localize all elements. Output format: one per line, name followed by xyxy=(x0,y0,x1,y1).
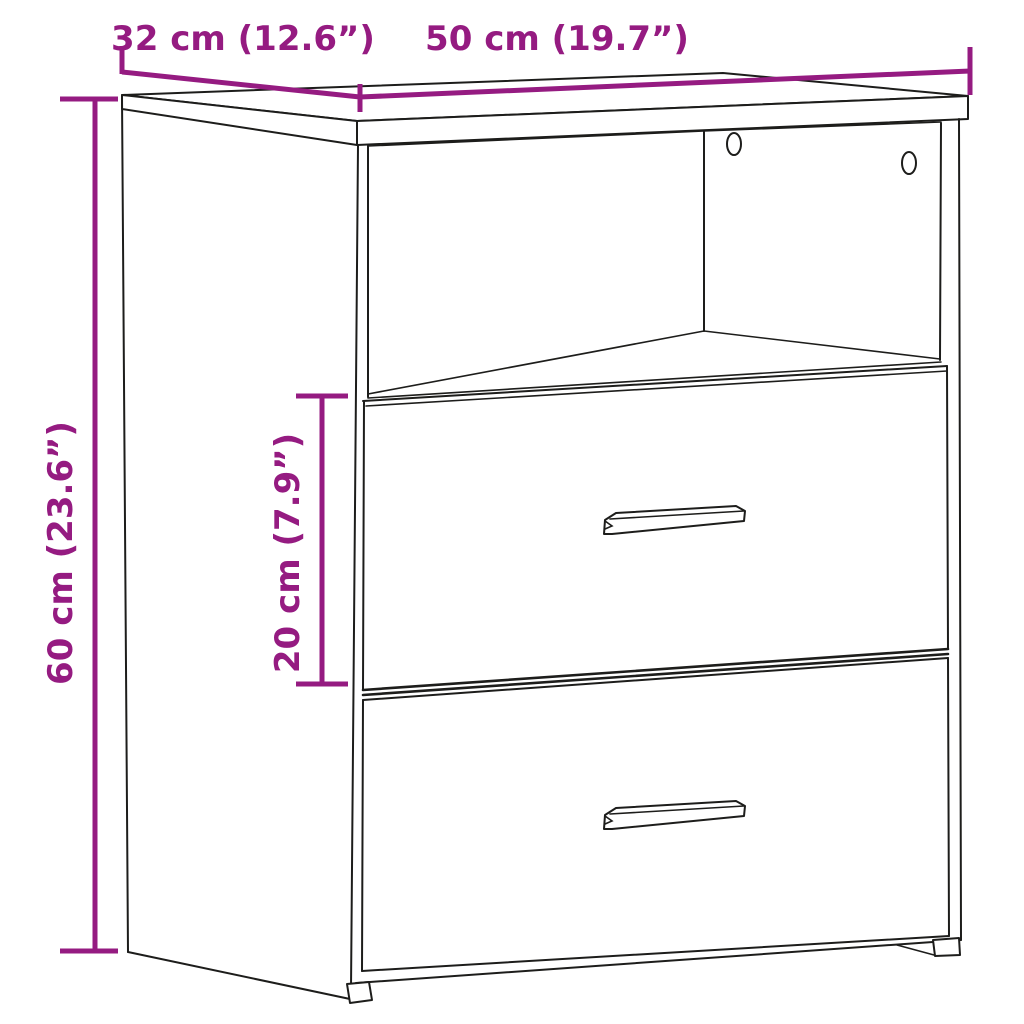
width-dimension-label: 50 cm (19.7”) xyxy=(425,19,689,59)
wall-mount-hole-right-icon xyxy=(902,152,916,174)
drawer-upper-handle xyxy=(604,506,745,534)
dimension-annotations: 32 cm (12.6”) 50 cm (19.7”) 60 cm (23.6”… xyxy=(41,19,970,951)
drawer-height-dimension: 20 cm (7.9”) xyxy=(268,396,348,684)
drawer-upper-top-edge xyxy=(363,366,947,401)
drawer-lower-bottom-edge xyxy=(362,936,949,971)
drawer-upper-top-shadow-edge xyxy=(366,371,947,406)
front-left-foot xyxy=(347,982,372,1003)
dimension-diagram: 32 cm (12.6”) 50 cm (19.7”) 60 cm (23.6”… xyxy=(0,0,1024,1024)
cabinet-drawing: 32 cm (12.6”) 50 cm (19.7”) 60 cm (23.6”… xyxy=(0,0,1024,1024)
drawer-height-dimension-label: 20 cm (7.9”) xyxy=(268,433,308,673)
shelf-right-wall-front-edge xyxy=(940,123,941,360)
left-panel-left-edge xyxy=(122,97,128,952)
depth-dimension-label: 32 cm (12.6”) xyxy=(111,19,375,59)
cabinet-bottom xyxy=(347,938,961,1003)
drawer-lower-right-edge xyxy=(948,658,949,936)
back-panel-bottom-edge xyxy=(704,331,940,359)
front-right-outer-edge xyxy=(959,119,961,940)
drawer-upper-bottom-edge xyxy=(363,649,948,690)
shelf-floor-front-edge xyxy=(368,362,941,398)
height-dimension: 60 cm (23.6”) xyxy=(41,99,118,951)
cabinet-bottom-front-edge xyxy=(356,940,961,983)
handle-bar xyxy=(604,506,745,534)
front-right-foot xyxy=(933,938,960,956)
front-left-outer-edge xyxy=(351,146,358,989)
drawer-lower-left-edge xyxy=(362,700,363,971)
wall-mount-hole-left-icon xyxy=(727,133,741,155)
cabinet xyxy=(122,73,968,1003)
divider-front-edge xyxy=(363,654,948,695)
drawer-lower-top-edge xyxy=(363,658,948,700)
drawer-lower-handle xyxy=(604,801,745,829)
drawer-upper-left-edge xyxy=(363,401,364,690)
drawer-upper-right-edge xyxy=(947,366,948,649)
right-foot-diagonal-edge xyxy=(897,945,934,955)
left-panel-bottom-edge xyxy=(128,952,350,999)
open-shelf-compartment xyxy=(368,122,941,398)
drawer-divider xyxy=(363,649,948,700)
height-dimension-label: 60 cm (23.6”) xyxy=(41,421,81,685)
